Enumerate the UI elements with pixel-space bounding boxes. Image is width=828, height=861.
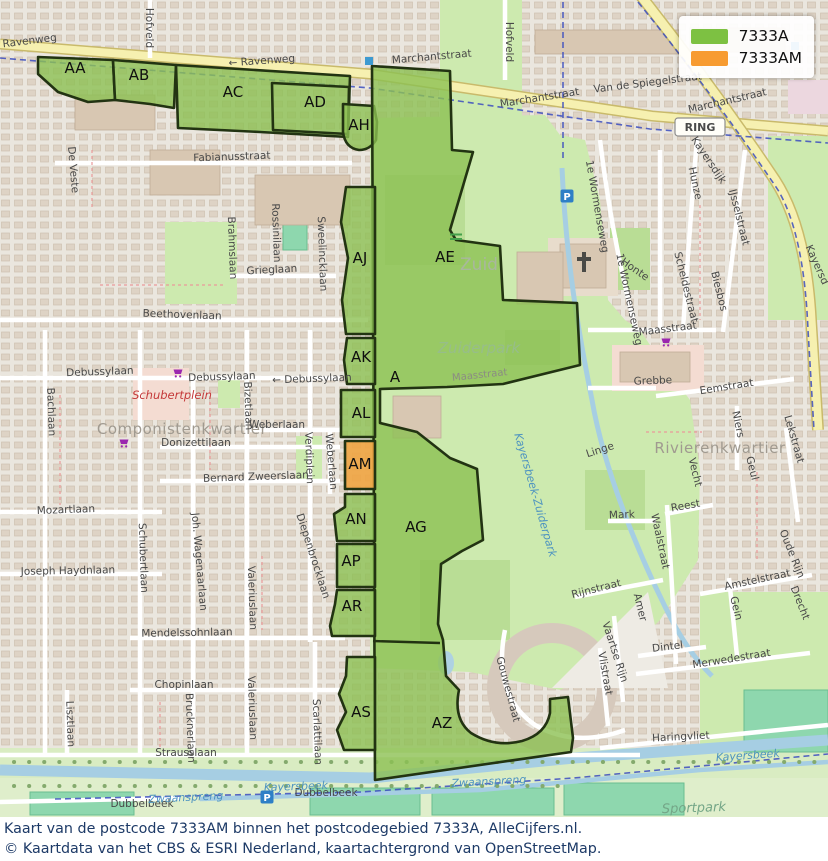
map-label: Mendelssohnlaan	[141, 626, 233, 640]
map-label: Chopinlaan	[154, 679, 213, 691]
road-badge-label: RING	[685, 121, 716, 134]
map-label: Zuiderpark	[437, 339, 522, 357]
map-label: Zuid	[460, 255, 498, 275]
busstop-icon	[365, 57, 373, 65]
caption-line1: Kaart van de postcode 7333AM binnen het …	[4, 819, 828, 839]
map-label: Kayersbeek	[264, 779, 329, 794]
zone-label-AK: AK	[351, 348, 372, 366]
map-label: Lisztlaan	[63, 701, 77, 748]
map-label: Schubertlaan	[136, 523, 150, 593]
map-label: Bachlaan	[44, 387, 58, 436]
map-label: Sportpark	[662, 800, 727, 817]
zone-label-AZ: AZ	[432, 714, 453, 732]
legend-label-7333a: 7333A	[739, 27, 789, 45]
map-label: Brahmslaan	[225, 216, 239, 279]
zone-label-AR: AR	[342, 597, 363, 615]
zone-label-AD: AD	[304, 93, 326, 111]
legend-row-7333a: 7333A	[691, 27, 802, 45]
map-label: Hofveld	[143, 8, 155, 48]
zone-label-AP: AP	[341, 552, 360, 570]
map-label: Donizettilaan	[161, 437, 231, 449]
map-label: Mozartlaan	[37, 503, 96, 517]
caption-line2: © Kaartdata van het CBS & ESRI Nederland…	[4, 839, 828, 859]
map-label: Mark	[609, 509, 636, 522]
legend-swatch-green	[691, 29, 728, 44]
zone-label-AB: AB	[129, 66, 150, 84]
postcode-map-page: PP RING Ravenweg← RavenwegMarchantstraat…	[0, 0, 828, 861]
legend-swatch-orange	[691, 51, 728, 66]
parking-icon: P	[561, 190, 574, 203]
map-label: Componistenkwartier	[97, 420, 268, 438]
svg-text:P: P	[563, 192, 570, 203]
map-label: Valeriuslaan	[245, 566, 259, 630]
map-label: Joseph Haydnlaan	[20, 564, 116, 578]
map-label: Scarlattilaan	[310, 699, 324, 766]
badges-layer: RING	[675, 118, 725, 136]
zone-label-AC: AC	[223, 83, 243, 101]
zone-label-AG: AG	[405, 518, 427, 536]
zone-label-AM: AM	[348, 455, 371, 473]
map-label: Debussylaan	[66, 365, 134, 379]
map-label: Rossinilaan	[269, 203, 283, 263]
caption: Kaart van de postcode 7333AM binnen het …	[0, 817, 828, 861]
map-label: Hofveld	[503, 22, 515, 62]
map-label: Schubertplein	[132, 388, 212, 402]
legend: 7333A 7333AM	[679, 16, 814, 78]
legend-label-7333am: 7333AM	[739, 49, 802, 67]
map-label: Rivierenkwartier	[654, 439, 786, 457]
map-label: Strausslaan	[155, 747, 217, 759]
zone-label-AS: AS	[351, 703, 371, 721]
zone-label-AH: AH	[348, 116, 370, 134]
map-label: Valeriuslaan	[245, 676, 259, 740]
map-label: Weberlaan	[249, 419, 305, 431]
zone-label-AN: AN	[345, 510, 366, 528]
svg-text:P: P	[263, 793, 270, 804]
zone-label-AL: AL	[352, 404, 371, 422]
map-label: Bizetlaan	[241, 381, 255, 430]
zone-label-AE: AE	[435, 248, 455, 266]
map-canvas: PP RING Ravenweg← RavenwegMarchantstraat…	[0, 0, 828, 817]
map-label: Grebbe	[633, 374, 672, 387]
zone-label-A: A	[390, 368, 401, 386]
legend-row-7333am: 7333AM	[691, 49, 802, 67]
zone-label-AA: AA	[65, 59, 87, 77]
zone-label-AJ: AJ	[353, 249, 368, 267]
